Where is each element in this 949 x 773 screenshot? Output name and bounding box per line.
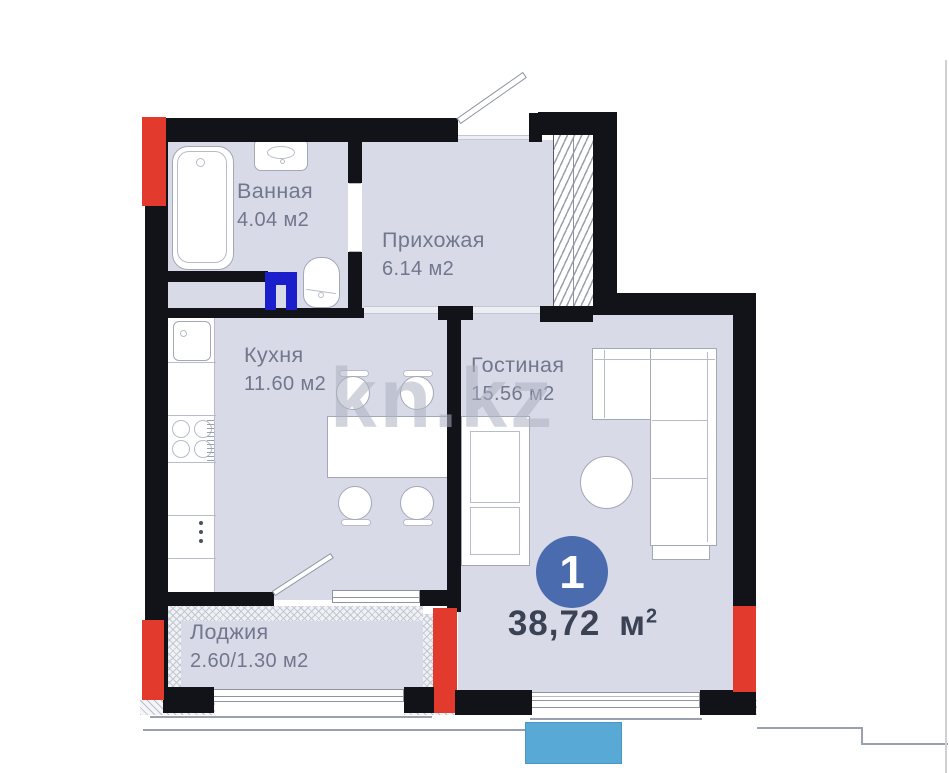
bathroom-sink (254, 138, 308, 171)
facade-line (530, 718, 702, 720)
room-count-badge: 1 (536, 536, 608, 608)
bathroom-label: Ванная 4.04 м2 (237, 179, 313, 232)
room-name: Прихожая (382, 228, 485, 253)
wall-hallway-right (593, 112, 617, 314)
living-room-label: Гостиная 15.56 м2 (471, 353, 564, 406)
room-count: 1 (559, 545, 585, 599)
hallway-label: Прихожая 6.14 м2 (382, 228, 485, 281)
total-area-value: 38,72 (508, 604, 601, 643)
bathtub-drain (196, 158, 205, 167)
wall-living-top (593, 293, 756, 315)
counter-divider (168, 362, 216, 363)
counter-divider (168, 415, 216, 416)
chair (338, 486, 372, 520)
oven-grill (207, 419, 214, 461)
sofa-back-line (707, 352, 708, 542)
floor-plan: Ванная 4.04 м2 Прихожая 6.14 м2 Кухня 11… (0, 0, 949, 773)
sofa-back-line (594, 359, 715, 360)
counter-divider (168, 558, 216, 559)
wall-bath-divider (348, 142, 362, 183)
room-name: Ванная (237, 179, 313, 204)
kitchen-sink (173, 321, 211, 361)
facade-line (861, 743, 948, 745)
loggia-window (213, 689, 404, 702)
coffee-table (580, 456, 633, 509)
counter-divider (168, 515, 216, 516)
total-area-label: 38,72 м2 (483, 604, 683, 648)
knob-dot (199, 539, 203, 543)
chair (400, 486, 434, 520)
room-name: Лоджия (190, 620, 309, 645)
chair (336, 376, 370, 410)
wall-living-bottom-right (700, 690, 756, 715)
sink-basin (267, 146, 295, 159)
wall-opening-right (540, 306, 593, 322)
knob-dot (199, 530, 203, 534)
sofa-cushion-line (652, 478, 707, 479)
sink-drain (280, 159, 285, 164)
sofa-cushion-line (652, 420, 707, 421)
kitchen-sink-drain (180, 330, 187, 337)
tv-stand (461, 416, 530, 566)
wall-window-stub (420, 590, 448, 606)
room-area: 6.14 м2 (382, 258, 485, 281)
wall-living-bottom-left (455, 690, 532, 715)
entrance-threshold (458, 135, 538, 140)
wardrobe-rail (573, 137, 574, 308)
chair-back (341, 519, 371, 526)
tv-stand-inner (470, 431, 520, 503)
total-area-unit: м (619, 604, 646, 643)
kitchen-loggia-window (332, 590, 420, 603)
loggia-wall-top (165, 606, 423, 621)
room-area: 4.04 м2 (237, 209, 313, 232)
total-area-sup: 2 (646, 605, 658, 627)
entrance-door-leaf (457, 72, 527, 124)
bathroom-hallway-opening (349, 183, 361, 252)
wall-bath-divider (348, 252, 362, 312)
chair-back (403, 519, 433, 526)
bathroom-door-frame (265, 272, 276, 310)
toilet-flush (318, 292, 324, 298)
room-area: 11.60 м2 (244, 373, 326, 396)
wall-bath-stub (163, 271, 268, 282)
bathroom-door-frame (286, 272, 297, 310)
wall-kitchen-living-divider (447, 316, 461, 612)
wall-kitchen-top (163, 308, 364, 318)
wall-loggia-corner-right (404, 687, 434, 713)
red-insulation-block (142, 117, 166, 206)
room-name: Гостиная (471, 353, 564, 378)
room-area: 2.60/1.30 м2 (190, 650, 309, 673)
knob-dot (199, 521, 203, 525)
room-name: Кухня (244, 343, 326, 368)
wall-top (145, 118, 458, 142)
red-insulation-block (733, 606, 756, 692)
dining-table (327, 416, 449, 478)
photo-edge-line (945, 60, 947, 773)
sofa-ottoman (652, 545, 710, 560)
loggia-label: Лоджия 2.60/1.30 м2 (190, 620, 309, 673)
facade-line (150, 716, 432, 718)
stove-burner (172, 440, 190, 458)
tv-stand-inner (470, 507, 520, 555)
red-insulation-block (433, 608, 457, 713)
kitchen-label: Кухня 11.60 м2 (244, 343, 326, 396)
hallway-kitchen-opening (364, 306, 438, 314)
room-area: 15.56 м2 (471, 383, 564, 406)
counter-divider (168, 462, 216, 463)
living-room-window (531, 692, 700, 708)
chair (400, 376, 434, 410)
stove-burner (172, 420, 190, 438)
facade-line (757, 727, 863, 729)
wardrobe (553, 135, 594, 310)
wall-kitchen-bottom (163, 592, 274, 606)
bathtub (172, 146, 234, 270)
sofa-armrest-line (604, 350, 605, 418)
toilet (303, 257, 340, 308)
blue-marker (525, 722, 622, 764)
bathtub-inner (177, 151, 227, 263)
kitchen-counter (167, 314, 215, 600)
hallway-living-opening (467, 306, 540, 314)
wall-loggia-corner-left (163, 687, 214, 713)
red-insulation-block (142, 620, 164, 700)
